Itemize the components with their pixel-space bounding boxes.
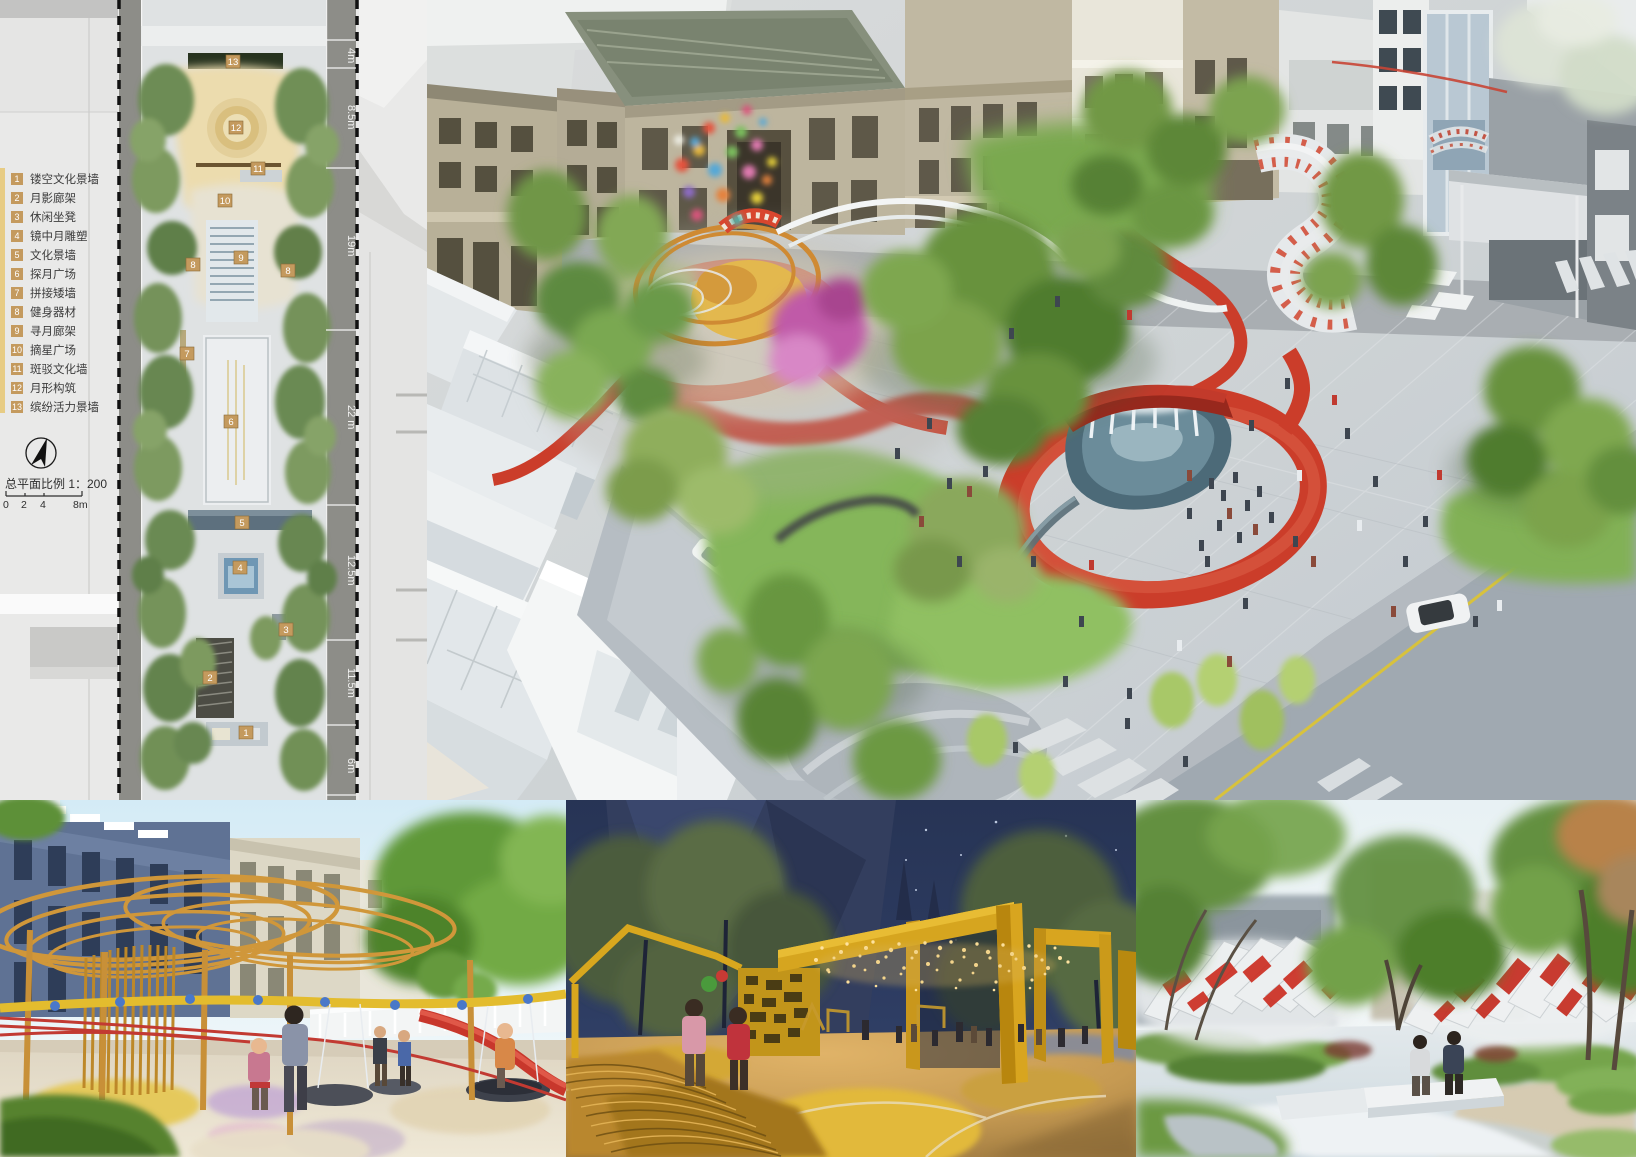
svg-text:1: 1 <box>243 728 248 739</box>
svg-text:9: 9 <box>238 253 243 264</box>
svg-text:19m: 19m <box>345 235 357 256</box>
svg-text:2: 2 <box>21 499 27 511</box>
svg-text:1: 1 <box>14 174 19 184</box>
svg-text:6: 6 <box>228 417 233 428</box>
svg-text:8: 8 <box>190 260 195 271</box>
svg-text:8m: 8m <box>73 499 88 511</box>
svg-text:9: 9 <box>14 326 19 336</box>
svg-text:6m: 6m <box>345 758 357 773</box>
svg-text:探月广场: 探月广场 <box>30 267 76 281</box>
svg-text:5: 5 <box>239 518 244 529</box>
svg-text:13: 13 <box>12 402 22 412</box>
svg-text:5: 5 <box>14 250 19 260</box>
svg-text:4: 4 <box>40 499 46 511</box>
svg-text:7: 7 <box>184 349 189 360</box>
svg-text:12: 12 <box>12 383 22 393</box>
svg-text:8: 8 <box>14 307 19 317</box>
svg-text:寻月廊架: 寻月廊架 <box>30 324 76 338</box>
svg-text:镜中月雕塑: 镜中月雕塑 <box>30 229 88 243</box>
svg-text:斑驳文化墙: 斑驳文化墙 <box>30 362 88 376</box>
svg-text:4m: 4m <box>345 48 357 63</box>
svg-text:健身器材: 健身器材 <box>30 305 76 319</box>
svg-text:3: 3 <box>283 625 288 636</box>
svg-text:3: 3 <box>14 212 19 222</box>
svg-text:镂空文化景墙: 镂空文化景墙 <box>30 172 99 186</box>
svg-text:10: 10 <box>220 196 231 207</box>
svg-text:总平面比例 1：200: 总平面比例 1：200 <box>5 477 107 491</box>
svg-text:4: 4 <box>14 231 19 241</box>
svg-text:10: 10 <box>12 345 22 355</box>
svg-text:7: 7 <box>14 288 19 298</box>
svg-text:4: 4 <box>237 563 242 574</box>
svg-text:11.5m: 11.5m <box>345 668 357 698</box>
svg-text:11: 11 <box>253 164 263 175</box>
svg-text:8.5m: 8.5m <box>345 105 357 129</box>
svg-text:拼接矮墙: 拼接矮墙 <box>30 286 76 300</box>
svg-text:12.5m: 12.5m <box>345 555 357 586</box>
svg-text:缤纷活力景墙: 缤纷活力景墙 <box>30 400 99 414</box>
svg-text:月影廊架: 月影廊架 <box>30 191 76 205</box>
svg-text:0: 0 <box>3 499 9 511</box>
svg-text:11: 11 <box>12 364 21 374</box>
svg-text:摘星广场: 摘星广场 <box>30 343 76 357</box>
svg-text:2: 2 <box>14 193 19 203</box>
svg-text:22 m: 22 m <box>345 405 357 429</box>
svg-text:8: 8 <box>285 266 290 277</box>
svg-text:6: 6 <box>14 269 19 279</box>
svg-text:文化景墙: 文化景墙 <box>30 248 76 262</box>
svg-text:2: 2 <box>207 673 212 684</box>
svg-text:月形构筑: 月形构筑 <box>30 381 76 395</box>
svg-text:13: 13 <box>228 57 239 68</box>
svg-text:休闲坐凳: 休闲坐凳 <box>30 210 76 224</box>
svg-text:12: 12 <box>231 123 242 134</box>
